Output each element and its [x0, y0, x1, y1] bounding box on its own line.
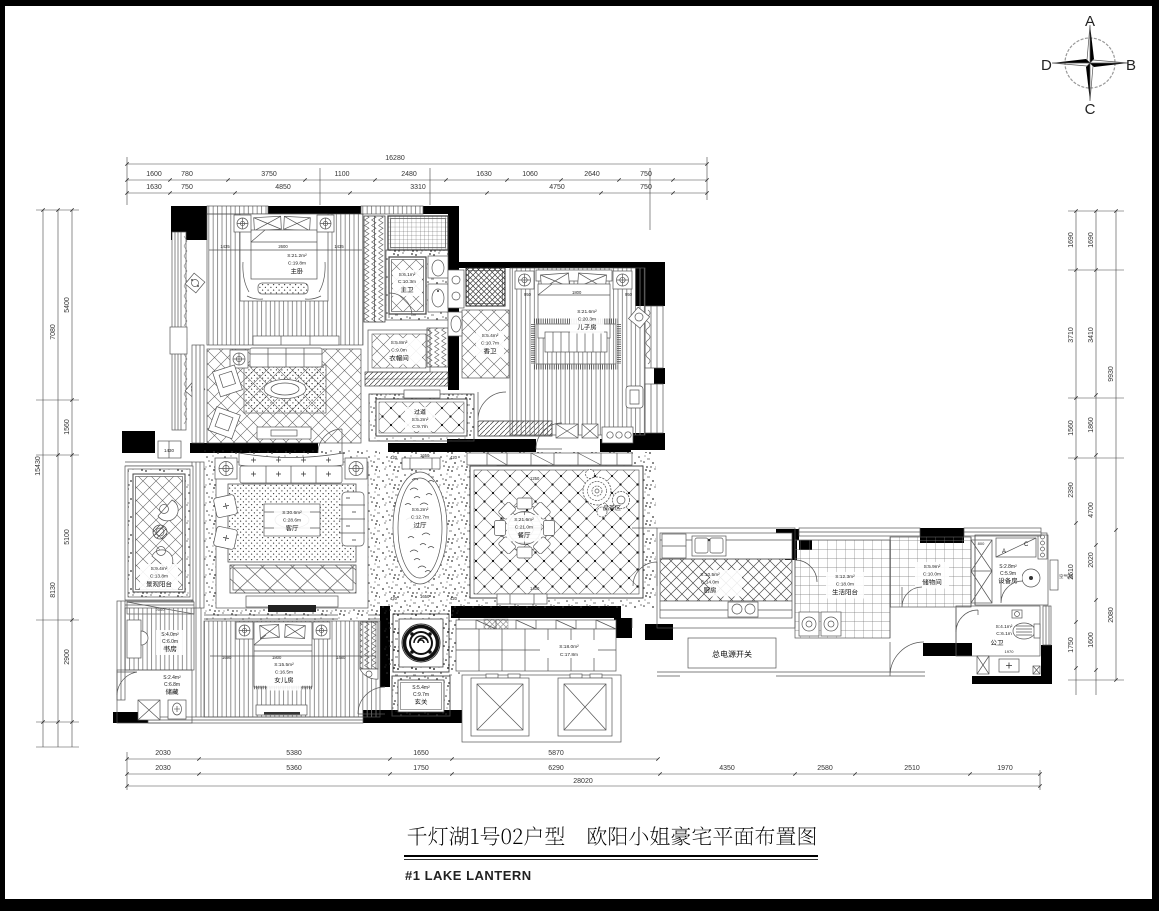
svg-text:420: 420 — [390, 455, 398, 460]
svg-text:1750: 1750 — [413, 765, 429, 772]
svg-text:C:13.8m: C:13.8m — [150, 574, 168, 580]
svg-text:1630: 1630 — [146, 184, 162, 191]
svg-text:S:6.1m²: S:6.1m² — [399, 272, 416, 278]
svg-text:C:6.8m: C:6.8m — [164, 682, 180, 688]
svg-text:D: D — [1041, 57, 1052, 74]
svg-text:S:2.8m²: S:2.8m² — [999, 564, 1017, 570]
svg-text:6290: 6290 — [548, 765, 564, 772]
svg-text:S:30.6m²: S:30.6m² — [282, 510, 302, 516]
svg-text:2390: 2390 — [1068, 482, 1075, 498]
svg-text:1435: 1435 — [334, 244, 344, 249]
svg-text:3410: 3410 — [1088, 327, 1095, 343]
svg-text:C:19.8m: C:19.8m — [288, 261, 306, 267]
svg-text:800: 800 — [978, 541, 985, 546]
svg-text:420: 420 — [390, 596, 398, 601]
svg-text:S:6.2m²: S:6.2m² — [412, 507, 429, 513]
svg-text:2020: 2020 — [1088, 552, 1095, 568]
svg-text:2640: 2640 — [584, 171, 600, 178]
svg-text:1970: 1970 — [1005, 649, 1015, 654]
svg-text:5870: 5870 — [548, 750, 564, 757]
svg-text:1400: 1400 — [530, 586, 540, 591]
svg-text:S:9.4m²: S:9.4m² — [151, 566, 168, 572]
svg-text:1560: 1560 — [1068, 420, 1075, 436]
svg-text:2580: 2580 — [817, 765, 833, 772]
svg-text:C:10.7m: C:10.7m — [481, 341, 499, 347]
svg-text:420: 420 — [450, 455, 458, 460]
svg-text:C:28.6m: C:28.6m — [283, 518, 301, 524]
svg-text:420: 420 — [450, 596, 458, 601]
svg-text:1650: 1650 — [413, 750, 429, 757]
svg-text:1800: 1800 — [572, 290, 582, 295]
svg-text:1970: 1970 — [997, 765, 1013, 772]
svg-text:B: B — [1126, 57, 1136, 74]
svg-text:1650: 1650 — [420, 453, 430, 458]
svg-text:2080: 2080 — [1108, 607, 1115, 623]
svg-text:1860: 1860 — [1088, 417, 1095, 433]
svg-text:780: 780 — [181, 171, 193, 178]
svg-text:15430: 15430 — [35, 456, 42, 476]
svg-text:C:21.0m: C:21.0m — [515, 525, 533, 531]
svg-text:7080: 7080 — [50, 324, 57, 340]
svg-text:5380: 5380 — [286, 750, 302, 757]
svg-text:C:9.7m: C:9.7m — [412, 424, 427, 430]
svg-text:S:18.0m²: S:18.0m² — [559, 644, 579, 650]
svg-text:1750: 1750 — [1068, 637, 1075, 653]
svg-text:#1 LAKE LANTERN: #1 LAKE LANTERN — [405, 868, 532, 883]
svg-text:5400: 5400 — [64, 297, 71, 313]
svg-text:2030: 2030 — [155, 750, 171, 757]
svg-text:1600: 1600 — [146, 171, 162, 178]
svg-text:1435: 1435 — [220, 244, 230, 249]
svg-text:S:5.4m²: S:5.4m² — [412, 685, 430, 691]
svg-text:2900: 2900 — [64, 649, 71, 665]
svg-text:S:5.4m²: S:5.4m² — [482, 333, 499, 339]
svg-text:S:5.9m²: S:5.9m² — [924, 564, 941, 570]
svg-text:950: 950 — [625, 292, 633, 297]
svg-text:S:2.4m²: S:2.4m² — [163, 675, 181, 681]
svg-text:C:18.0m: C:18.0m — [836, 582, 854, 588]
svg-text:S:5.2m²: S:5.2m² — [412, 417, 429, 423]
svg-text:S:15.5m²: S:15.5m² — [274, 662, 294, 668]
svg-text:3750: 3750 — [261, 171, 277, 178]
svg-text:S:4.1m²: S:4.1m² — [996, 624, 1013, 630]
svg-text:A: A — [1002, 549, 1006, 555]
svg-text:3710: 3710 — [1068, 327, 1075, 343]
svg-text:16280: 16280 — [385, 155, 405, 162]
svg-text:C:6.0m: C:6.0m — [162, 639, 178, 645]
svg-text:C:5.9m: C:5.9m — [1000, 571, 1016, 577]
svg-text:1690: 1690 — [1088, 232, 1095, 248]
svg-text:C:17.8m: C:17.8m — [560, 652, 578, 658]
svg-text:S:21.2m²: S:21.2m² — [287, 253, 307, 259]
svg-text:S:12.3m²: S:12.3m² — [835, 574, 855, 580]
svg-text:C: C — [1024, 542, 1029, 548]
svg-text:750: 750 — [181, 184, 193, 191]
svg-text:S:21.6m²: S:21.6m² — [577, 309, 597, 315]
svg-text:28020: 28020 — [573, 778, 593, 785]
svg-text:S:10.5m²: S:10.5m² — [700, 572, 720, 578]
svg-text:C:9.0m: C:9.0m — [391, 348, 406, 354]
svg-text:2510: 2510 — [904, 765, 920, 772]
svg-text:S:21.6m²: S:21.6m² — [514, 517, 534, 523]
svg-text:950: 950 — [524, 292, 532, 297]
svg-text:5100: 5100 — [64, 529, 71, 545]
svg-text:5360: 5360 — [286, 765, 302, 772]
svg-text:C:12.7m: C:12.7m — [411, 515, 429, 521]
svg-text:C:16.5m: C:16.5m — [275, 670, 293, 676]
svg-text:1650: 1650 — [420, 594, 430, 599]
svg-text:C:20.3m: C:20.3m — [578, 317, 596, 323]
svg-text:2600: 2600 — [278, 244, 288, 249]
svg-text:S:4.0m²: S:4.0m² — [161, 632, 179, 638]
svg-text:A: A — [1085, 13, 1095, 30]
svg-text:1560: 1560 — [64, 419, 71, 435]
svg-text:3310: 3310 — [410, 184, 426, 191]
svg-text:C:9.7m: C:9.7m — [413, 692, 429, 698]
svg-text:1690: 1690 — [1068, 232, 1075, 248]
svg-text:1430: 1430 — [164, 448, 175, 453]
svg-text:8130: 8130 — [50, 582, 57, 598]
svg-text:C:14.0m: C:14.0m — [701, 580, 719, 586]
svg-text:4850: 4850 — [275, 184, 291, 191]
svg-text:4700: 4700 — [1088, 502, 1095, 518]
svg-text:1630: 1630 — [476, 171, 492, 178]
svg-text:1250: 1250 — [530, 476, 540, 481]
svg-text:9930: 9930 — [1108, 366, 1115, 382]
svg-text:4350: 4350 — [719, 765, 735, 772]
svg-text:S:5.8m²: S:5.8m² — [391, 340, 408, 346]
svg-text:4750: 4750 — [549, 184, 565, 191]
svg-text:C:10.0m: C:10.0m — [923, 572, 941, 578]
svg-text:2030: 2030 — [155, 765, 171, 772]
svg-text:1100: 1100 — [334, 171, 349, 178]
svg-text:C: C — [1085, 101, 1096, 118]
svg-text:2480: 2480 — [401, 171, 417, 178]
svg-text:1060: 1060 — [522, 171, 538, 178]
svg-text:1600: 1600 — [1088, 632, 1095, 648]
svg-text:C:10.3m: C:10.3m — [398, 279, 416, 285]
svg-text:C:6.1m: C:6.1m — [996, 631, 1011, 637]
